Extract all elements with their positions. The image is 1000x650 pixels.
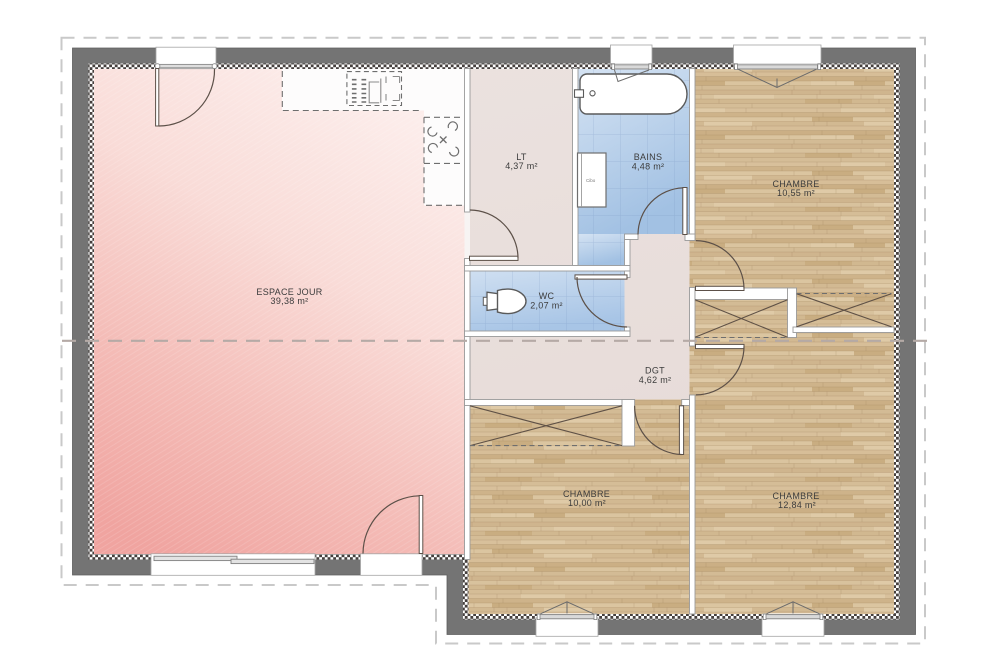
svg-text:10,55 m²: 10,55 m²: [777, 188, 815, 198]
svg-text:2,07 m²: 2,07 m²: [530, 301, 563, 311]
svg-text:10,00 m²: 10,00 m²: [568, 498, 606, 508]
svg-text:39,38 m²: 39,38 m²: [271, 296, 309, 306]
svg-text:4,62 m²: 4,62 m²: [639, 375, 672, 385]
svg-text:WC: WC: [539, 291, 555, 301]
svg-text:12,84 m²: 12,84 m²: [778, 500, 816, 510]
svg-text:4,48 m²: 4,48 m²: [632, 161, 665, 171]
svg-text:Cibo: Cibo: [586, 178, 596, 183]
svg-text:4,37 m²: 4,37 m²: [505, 161, 538, 171]
